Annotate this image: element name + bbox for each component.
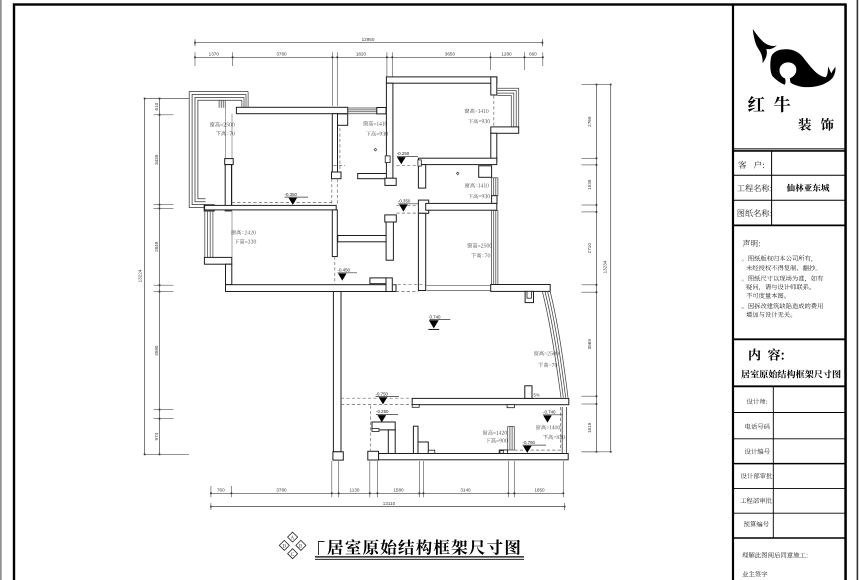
svg-text:-0.350: -0.350 bbox=[285, 192, 298, 197]
svg-text:610: 610 bbox=[154, 102, 159, 110]
svg-text:3569: 3569 bbox=[587, 339, 592, 350]
svg-text:1280: 1280 bbox=[501, 52, 512, 57]
svg-text:-0.450: -0.450 bbox=[338, 268, 351, 273]
svg-text:-0.250: -0.250 bbox=[376, 409, 389, 414]
svg-text:-0.740: -0.740 bbox=[543, 410, 556, 415]
svg-text:3140: 3140 bbox=[460, 488, 471, 493]
svg-text:1130: 1130 bbox=[350, 488, 360, 493]
svg-text:5%: 5% bbox=[534, 393, 540, 398]
svg-text:2710: 2710 bbox=[587, 243, 592, 254]
svg-text:12950: 12950 bbox=[362, 37, 375, 42]
svg-text:1850: 1850 bbox=[534, 488, 545, 493]
svg-text:13110: 13110 bbox=[383, 501, 396, 506]
svg-text:4590: 4590 bbox=[154, 345, 159, 356]
svg-text:3650: 3650 bbox=[445, 52, 456, 57]
svg-text:1820: 1820 bbox=[356, 52, 367, 57]
svg-text:760: 760 bbox=[217, 488, 225, 493]
svg-text:-0.760: -0.760 bbox=[523, 440, 536, 445]
svg-text:13224: 13224 bbox=[138, 269, 143, 282]
svg-text:3439: 3439 bbox=[154, 154, 159, 165]
svg-text:-0.250: -0.250 bbox=[397, 151, 410, 156]
svg-text:974: 974 bbox=[154, 432, 159, 440]
svg-text:3780: 3780 bbox=[276, 52, 287, 57]
svg-text:-0.350: -0.350 bbox=[398, 199, 411, 204]
svg-text:2849: 2849 bbox=[154, 241, 159, 252]
svg-text:13234: 13234 bbox=[602, 260, 607, 273]
svg-text:1539: 1539 bbox=[587, 179, 592, 190]
svg-text:-0.750: -0.750 bbox=[376, 391, 389, 396]
svg-text:3780: 3780 bbox=[276, 488, 287, 493]
svg-text:2769: 2769 bbox=[587, 116, 592, 127]
svg-text:0.740: 0.740 bbox=[430, 314, 442, 319]
svg-text:1580: 1580 bbox=[393, 488, 404, 493]
svg-text:1370: 1370 bbox=[209, 52, 220, 57]
svg-text:660: 660 bbox=[529, 52, 537, 57]
svg-text:1819: 1819 bbox=[587, 422, 592, 433]
